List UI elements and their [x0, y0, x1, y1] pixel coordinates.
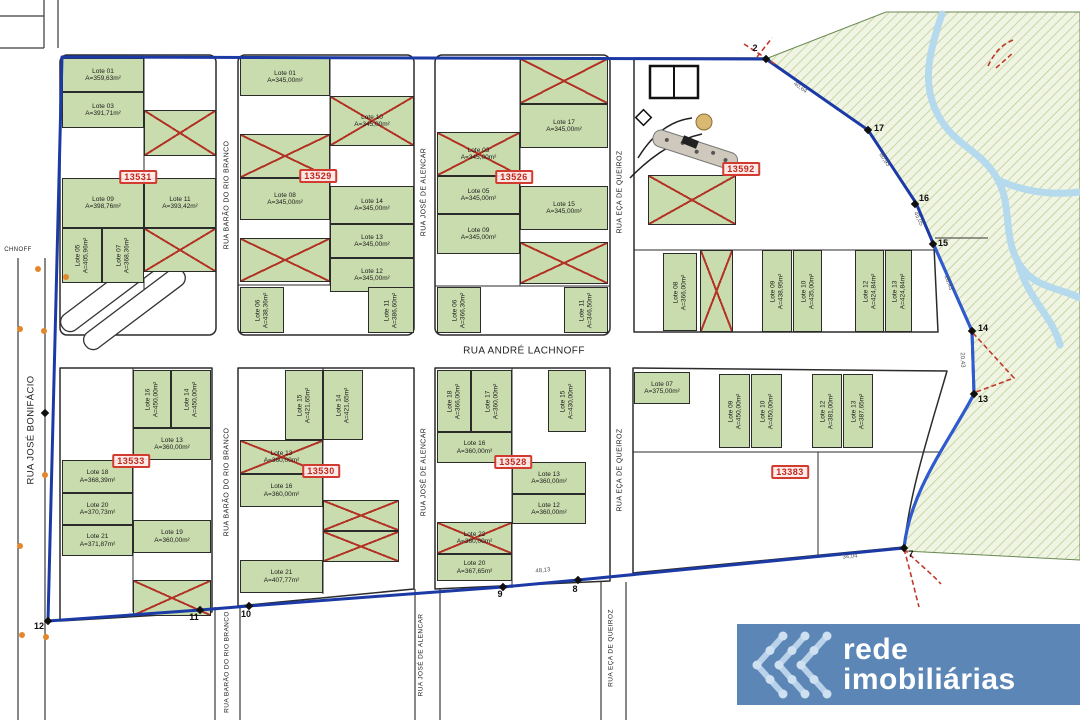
price-tag: 13528 [494, 455, 532, 469]
street-label: CHNOFF [4, 247, 31, 253]
vertex-number: 2 [752, 43, 757, 53]
logo-chevrons-icon [745, 629, 837, 701]
vertex-marker [762, 55, 770, 63]
price-tag: 13592 [722, 162, 760, 176]
utility-dot [35, 266, 41, 272]
dimension-text: 20,43 [959, 352, 966, 367]
street-label: RUA BARÃO DO RIO BRANCO [224, 611, 231, 713]
utility-dot [19, 632, 25, 638]
vertex-number: 8 [572, 584, 577, 594]
dimension-text: 34,04 [842, 553, 857, 560]
price-tag: 13383 [771, 465, 809, 479]
utility-dot [42, 472, 48, 478]
street-label: RUA JOSÉ BONIFÁCIO [26, 375, 37, 484]
street-label: RUA EÇA DE QUEIROZ [617, 150, 624, 233]
logo-line2: imobiliárias [843, 665, 1016, 695]
street-label: RUA JOSÉ DE ALENCAR [421, 428, 428, 517]
street-label: RUA ANDRÉ LACHNOFF [463, 346, 585, 357]
vertex-number: 9 [497, 589, 502, 599]
vertex-marker [900, 544, 908, 552]
utility-dot [17, 326, 23, 332]
utility-dot [63, 274, 69, 280]
dimension-text: 48,13 [535, 567, 551, 575]
vertex-number: 11 [189, 612, 199, 622]
logo-text: rede imobiliárias [843, 635, 1016, 695]
street-label: RUA EÇA DE QUEIROZ [617, 428, 624, 511]
labels-layer: RUA BARÃO DO RIO BRANCORUA BARÃO DO RIO … [0, 0, 1080, 720]
vertex-number: 15 [938, 238, 948, 248]
price-tag: 13526 [495, 170, 533, 184]
vertex-marker [968, 327, 976, 335]
dimension-text: 45,05 [912, 211, 924, 227]
price-tag: 13530 [302, 464, 340, 478]
street-label: RUA BARÃO DO RIO BRANCO [224, 428, 231, 537]
price-tag: 13533 [112, 454, 150, 468]
vertex-marker [970, 390, 978, 398]
vertex-marker [574, 576, 582, 584]
vertex-number: 14 [978, 323, 988, 333]
plat-map: Lote 01A=359,63m²Lote 03A=391,71m²Lote 0… [0, 0, 1080, 720]
vertex-number: 10 [241, 609, 251, 619]
utility-dot [17, 543, 23, 549]
vertex-marker [929, 240, 937, 248]
dimension-text: 40,64 [792, 81, 808, 95]
vertex-number: 17 [874, 123, 884, 133]
price-tag: 13531 [119, 170, 157, 184]
logo-line1: rede [843, 635, 1016, 665]
logo: rede imobiliárias [737, 624, 1080, 705]
vertex-number: 7 [908, 549, 913, 559]
vertex-marker [911, 200, 919, 208]
vertex-number: 16 [919, 193, 929, 203]
dimension-text: 60,93 [877, 152, 890, 168]
vertex-marker [864, 126, 872, 134]
vertex-marker [44, 617, 52, 625]
street-label: RUA BARÃO DO RIO BRANCO [224, 141, 231, 250]
street-label: RUA JOSÉ DE ALENCAR [421, 148, 428, 237]
vertex-number: 12 [34, 621, 44, 631]
price-tag: 13529 [299, 169, 337, 183]
vertex-number: 13 [978, 394, 988, 404]
street-label: RUA EÇA DE QUEIROZ [608, 609, 615, 687]
vertex-marker [41, 409, 49, 417]
utility-dot [41, 328, 47, 334]
dimension-text: 28,43 [943, 275, 954, 291]
utility-dot [43, 634, 49, 640]
street-label: RUA JOSÉ DE ALENCAR [418, 614, 425, 697]
